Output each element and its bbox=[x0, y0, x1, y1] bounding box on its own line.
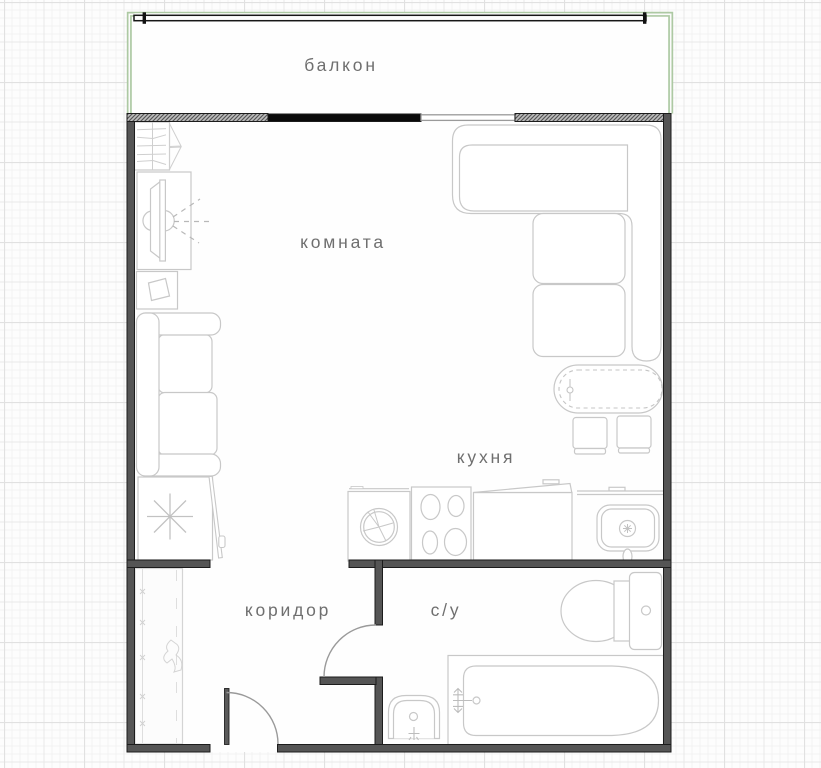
svg-text:кухня: кухня bbox=[457, 447, 516, 467]
svg-text:балкон: балкон bbox=[304, 55, 378, 75]
svg-text:с/у: с/у bbox=[431, 600, 462, 620]
svg-text:комната: комната bbox=[300, 232, 386, 252]
svg-text:коридор: коридор bbox=[245, 600, 331, 620]
